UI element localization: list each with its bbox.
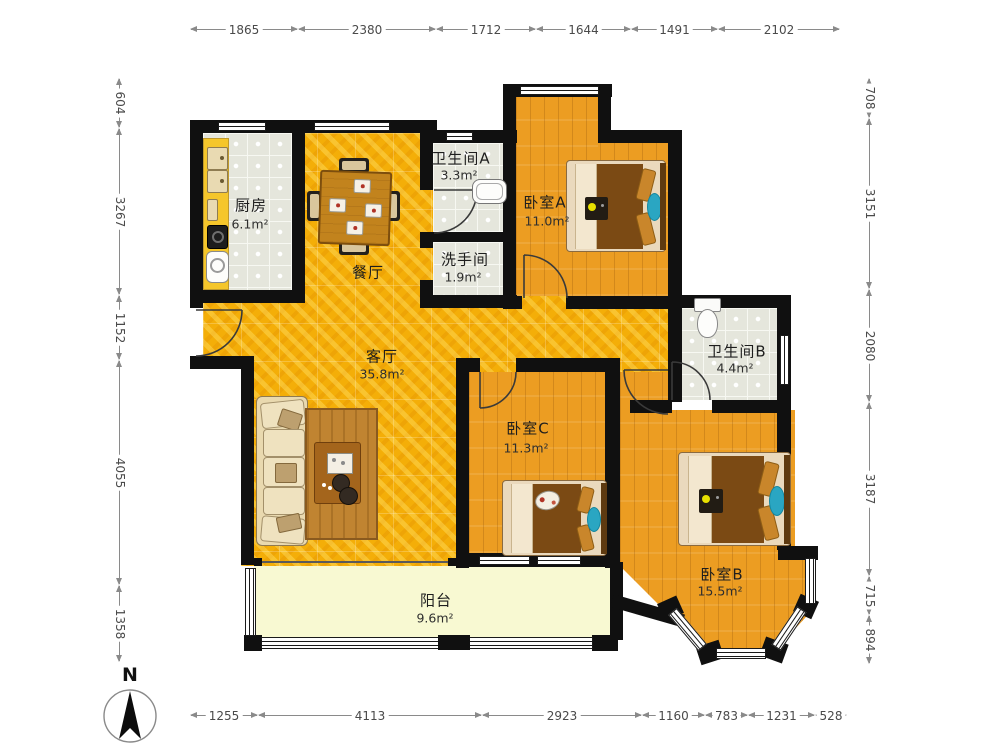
dining-table bbox=[318, 170, 393, 246]
dim-left-1: 604 bbox=[112, 78, 128, 128]
wall bbox=[630, 400, 672, 413]
wall bbox=[190, 120, 203, 308]
balcony-sill-line bbox=[258, 561, 456, 563]
dim-right-2: 3151 bbox=[862, 118, 878, 289]
room-area-bathroomA: 3.3m² bbox=[440, 168, 477, 183]
dim-left-5: 1358 bbox=[112, 585, 128, 662]
room-label-balcony: 阳台 bbox=[420, 590, 452, 611]
dim-right-5: 715 bbox=[862, 576, 878, 615]
outside-area bbox=[188, 369, 241, 567]
balcony-side-window bbox=[245, 568, 256, 636]
wall bbox=[420, 232, 516, 242]
bay-post bbox=[592, 635, 618, 651]
dining-window bbox=[314, 122, 390, 131]
wall bbox=[566, 296, 682, 309]
balcony-front-window bbox=[261, 637, 593, 649]
wall bbox=[456, 358, 469, 568]
dim-right-4: 3187 bbox=[862, 402, 878, 576]
bathroomB-window bbox=[780, 335, 789, 385]
bedroomB-bed bbox=[678, 452, 791, 546]
room-label-bedroomC: 卧室C bbox=[506, 418, 549, 439]
dim-left-3: 1152 bbox=[112, 295, 128, 360]
dim-top-3: 1712 bbox=[436, 22, 536, 38]
bedroomC-bed bbox=[502, 480, 607, 556]
sink-icon bbox=[206, 251, 229, 283]
dim-bottom-3: 2923 bbox=[482, 708, 642, 724]
toilet bbox=[694, 298, 720, 338]
bedroomA-bed bbox=[566, 160, 666, 252]
room-area-bedroomA: 11.0m² bbox=[524, 214, 569, 229]
dining-table-set bbox=[303, 156, 403, 256]
bedside-tray bbox=[699, 489, 723, 513]
dim-bottom-5: 783 bbox=[705, 708, 748, 724]
sofa bbox=[256, 396, 308, 546]
room-area-bedroomB: 15.5m² bbox=[697, 584, 742, 599]
dim-bottom-4: 1160 bbox=[642, 708, 705, 724]
bedroomA-floor-upper bbox=[516, 97, 598, 147]
wall bbox=[605, 358, 620, 568]
bedroomC-window-2 bbox=[537, 556, 581, 565]
room-label-washroom: 洗手间 bbox=[441, 249, 489, 270]
room-area-balcony: 9.6m² bbox=[416, 611, 453, 626]
room-label-bedroomB: 卧室B bbox=[700, 564, 743, 585]
room-label-bathroomB: 卫生间B bbox=[707, 341, 766, 362]
stove-icon bbox=[207, 225, 228, 249]
dim-bottom-6: 1231 bbox=[748, 708, 815, 724]
wall bbox=[420, 280, 433, 308]
bay-post bbox=[244, 635, 262, 651]
dim-bottom-7: 528 bbox=[815, 708, 847, 724]
bedroomC-window bbox=[479, 556, 530, 565]
room-label-bedroomA: 卧室A bbox=[523, 192, 566, 213]
north-label: N bbox=[122, 664, 138, 686]
room-area-kitchen: 6.1m² bbox=[231, 217, 268, 232]
room-area-living: 35.8m² bbox=[359, 367, 404, 382]
wall bbox=[190, 290, 305, 303]
wall bbox=[668, 130, 682, 402]
coffee-table bbox=[314, 442, 361, 504]
north-compass: N bbox=[98, 664, 162, 748]
kitchen-window bbox=[218, 122, 266, 131]
sill-end bbox=[254, 558, 262, 566]
dim-left-4: 4055 bbox=[112, 360, 128, 585]
north-arrow-icon bbox=[98, 686, 162, 746]
wall bbox=[420, 233, 433, 248]
dim-right-6: 894 bbox=[862, 615, 878, 664]
dim-right-3: 2080 bbox=[862, 289, 878, 402]
room-label-bathroomA: 卫生间A bbox=[431, 148, 490, 169]
dim-right-1: 708 bbox=[862, 78, 878, 118]
dim-top-2: 2380 bbox=[298, 22, 436, 38]
room-area-washroom: 1.9m² bbox=[444, 270, 481, 285]
wall bbox=[668, 295, 790, 308]
room-label-kitchen: 厨房 bbox=[235, 195, 267, 216]
kitchen-counter bbox=[203, 138, 229, 290]
dim-left-2: 3267 bbox=[112, 128, 128, 295]
wall bbox=[241, 369, 254, 565]
bathroomA-window bbox=[446, 132, 473, 141]
bedroomA-window bbox=[520, 86, 599, 95]
bay-window-right bbox=[805, 558, 816, 604]
bay-window-front bbox=[716, 648, 766, 659]
dim-top-6: 2102 bbox=[718, 22, 840, 38]
room-label-dining: 餐厅 bbox=[352, 262, 384, 283]
dim-bottom-2: 4113 bbox=[258, 708, 482, 724]
room-area-bedroomC: 11.3m² bbox=[503, 441, 548, 456]
dim-top-1: 1865 bbox=[190, 22, 298, 38]
floor-plan-page: 厨房 6.1m² 餐厅 卫生间A 3.3m² 洗手间 1.9m² 卧室A 11.… bbox=[0, 0, 1000, 750]
bedside-tray bbox=[585, 197, 608, 220]
dim-top-4: 1644 bbox=[536, 22, 631, 38]
bay-post bbox=[438, 635, 470, 650]
dim-top-5: 1491 bbox=[631, 22, 718, 38]
room-label-living: 客厅 bbox=[366, 346, 398, 367]
wall bbox=[190, 356, 254, 369]
dim-bottom-1: 1255 bbox=[190, 708, 258, 724]
room-area-bathroomB: 4.4m² bbox=[716, 361, 753, 376]
sill-end bbox=[448, 558, 456, 566]
bathtub bbox=[472, 179, 507, 204]
